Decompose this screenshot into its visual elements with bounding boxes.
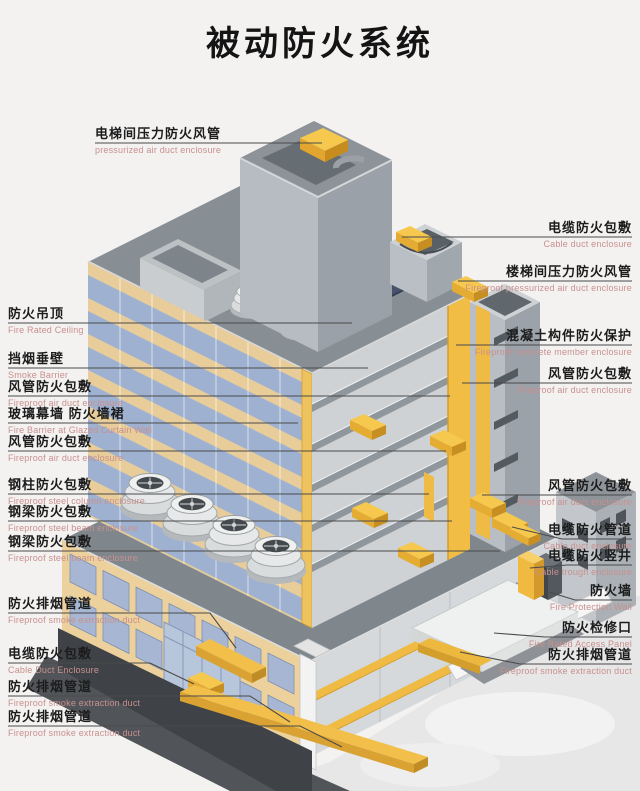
label-fire-rated-ceiling: 防火吊顶 Fire Rated Ceiling	[8, 306, 84, 335]
label-cable-fire-duct: 电缆防火管道 Cable duct enclosure	[543, 522, 632, 551]
label-cable-fire-shaft: 电缆防火竖井 Cable trough enclosure	[535, 548, 632, 577]
label-smoke-duct-1: 防火排烟管道 Fireproof smoke extraction duct	[8, 596, 140, 625]
label-zh: 风管防火包敷	[517, 478, 632, 493]
label-duct-enclosure-4: 风管防火包敷 Fireproof air duct enclosure	[517, 478, 632, 507]
label-en: Cable duct enclosure	[543, 239, 632, 249]
label-zh: 防火排烟管道	[8, 709, 140, 724]
label-smoke-barrier: 挡烟垂壁 Smoke Barrier	[8, 351, 68, 380]
label-zh: 挡烟垂壁	[8, 351, 68, 366]
label-en: Fireproof air duct enclosure	[517, 497, 632, 507]
label-zh: 楼梯间压力防火风管	[465, 264, 632, 279]
passive-fire-protection-diagram: 被动防火系统	[0, 0, 640, 791]
fireproof-steel-column	[424, 472, 434, 522]
label-stair-pressurized-duct: 楼梯间压力防火风管 Fireproof pressurized air duct…	[465, 264, 632, 293]
label-cable-duct-enclosure-right: 电缆防火包敷 Cable duct enclosure	[543, 220, 632, 249]
label-steel-column-enclosure: 钢柱防火包敷 Fireproof steel column enclosure	[8, 477, 145, 506]
label-zh: 风管防火包敷	[8, 379, 123, 394]
label-en: Fireproof steel beam enclosure	[8, 523, 138, 533]
label-zh: 钢梁防火包敷	[8, 504, 138, 519]
label-en: Fireproof smoke extraction duct	[8, 728, 140, 738]
label-smoke-duct-4: 防火排烟管道 Fireproof smoke extraction duct	[500, 647, 632, 676]
label-en: Fireproof steel beam enclosure	[8, 553, 138, 563]
label-en: Fireproof pressurized air duct enclosure	[465, 283, 632, 293]
label-pressurized-elevator-duct: 电梯间压力防火风管 pressurized air duct enclosure	[95, 126, 221, 155]
label-zh: 防火排烟管道	[8, 596, 140, 611]
label-zh: 钢梁防火包敷	[8, 534, 138, 549]
label-en: Fireproof smoke extraction duct	[8, 615, 140, 625]
label-zh: 防火排烟管道	[8, 679, 140, 694]
label-zh: 防火检修口	[529, 620, 632, 635]
label-en: Fireproof concrete member enclosure	[475, 347, 632, 357]
label-smoke-duct-3: 防火排烟管道 Fireproof smoke extraction duct	[8, 709, 140, 738]
label-zh: 防火吊顶	[8, 306, 84, 321]
label-en: Cable trough enclosure	[535, 567, 632, 577]
label-en: Fireproof air duct enclosure	[517, 385, 632, 395]
label-en: Fire Rated Ceiling	[8, 325, 84, 335]
label-zh: 电梯间压力防火风管	[95, 126, 221, 141]
elevator-shaft	[240, 121, 392, 352]
label-smoke-duct-2: 防火排烟管道 Fireproof smoke extraction duct	[8, 679, 140, 708]
label-en: Fireproof smoke extraction duct	[8, 698, 140, 708]
label-duct-enclosure-3: 风管防火包敷 Fireproof air duct enclosure	[517, 366, 632, 395]
label-en: Cable Duct Enclosure	[8, 665, 99, 675]
label-steel-beam-enclosure-2: 钢梁防火包敷 Fireproof steel beam enclosure	[8, 534, 138, 563]
label-en: Fire Protection Wall	[550, 602, 632, 612]
label-concrete-member-protection: 混凝土构件防火保护 Fireproof concrete member encl…	[475, 328, 632, 357]
label-zh: 玻璃幕墙 防火墙裙	[8, 406, 152, 421]
label-duct-enclosure-1: 风管防火包敷 Fireproof air duct enclosure	[8, 379, 123, 408]
label-zh: 电缆防火包敷	[543, 220, 632, 235]
label-en: pressurized air duct enclosure	[95, 145, 221, 155]
label-zh: 风管防火包敷	[517, 366, 632, 381]
label-cable-duct-enclosure-left: 电缆防火包敷 Cable Duct Enclosure	[8, 646, 99, 675]
label-zh: 电缆防火管道	[543, 522, 632, 537]
label-steel-beam-enclosure-1: 钢梁防火包敷 Fireproof steel beam enclosure	[8, 504, 138, 533]
label-fire-wall: 防火墙 Fire Protection Wall	[550, 583, 632, 612]
corner-column	[302, 369, 312, 628]
label-en: Fireproof smoke extraction duct	[500, 666, 632, 676]
fireproof-wall-strip	[448, 295, 470, 560]
label-zh: 防火墙	[550, 583, 632, 598]
label-zh: 风管防火包敷	[8, 434, 123, 449]
label-fire-access-panel: 防火检修口 Fire Rated Access Panel	[529, 620, 632, 649]
label-zh: 防火排烟管道	[500, 647, 632, 662]
label-curtain-wall-fire-barrier: 玻璃幕墙 防火墙裙 Fire Barrier at Glazed Curtain…	[8, 406, 152, 435]
label-duct-enclosure-2: 风管防火包敷 Fireproof air duct enclosure	[8, 434, 123, 463]
label-en: Fireproof air duct enclosure	[8, 453, 123, 463]
label-zh: 电缆防火包敷	[8, 646, 99, 661]
label-zh: 混凝土构件防火保护	[475, 328, 632, 343]
label-zh: 电缆防火竖井	[535, 548, 632, 563]
label-zh: 钢柱防火包敷	[8, 477, 145, 492]
